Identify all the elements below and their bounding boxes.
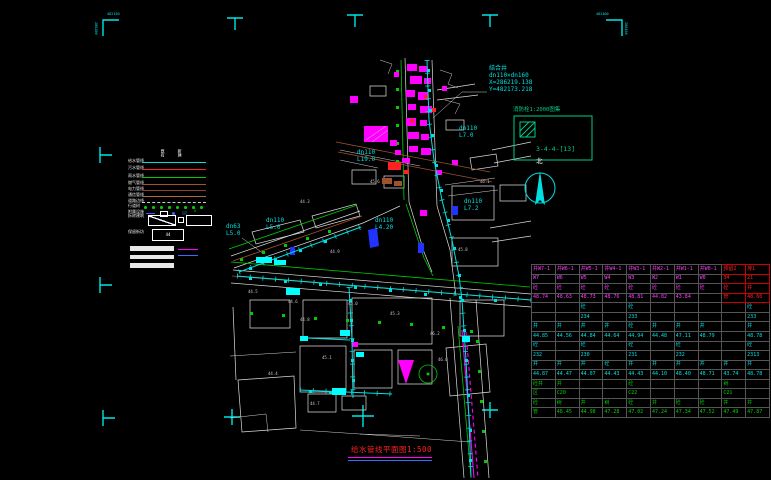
table-cell: 砼 (627, 341, 651, 351)
spot-elevation: 46.2 (430, 332, 440, 337)
table-row: 234233233 (532, 312, 770, 322)
table-cell: 砼 (627, 284, 651, 294)
table-row: 管48.4544.9847.2847.0247.2447.3447.5247.4… (532, 408, 770, 418)
table-cell: 47.87 (746, 408, 770, 418)
table-cell: 砼 (627, 398, 651, 408)
table-cell: 48.73 (579, 293, 603, 303)
table-cell: 树 (603, 398, 627, 408)
table-cell (603, 341, 627, 351)
map-label: dn110 L7.2 (464, 199, 482, 213)
table-cell: 232 (532, 351, 556, 361)
table-cell (722, 341, 746, 351)
table-cell: W1 (674, 274, 698, 284)
table-cell: 井 (555, 322, 579, 332)
table-cell: 井 (722, 360, 746, 370)
table-cell: 砼 (532, 341, 556, 351)
table-cell: 树 (722, 379, 746, 389)
hatch-blobs (256, 257, 470, 395)
table-row: 2322302312322313 (532, 351, 770, 361)
corner-coord-tr-v: 286450 (624, 22, 628, 35)
table-cell: 井 (579, 360, 603, 370)
table-row: 井W7-1井W6-1井W5-1井W4-1井W3-1井W2-1井W1-1井W0-1… (532, 265, 770, 275)
table-cell: 井 (555, 360, 579, 370)
table-cell: 230 (579, 351, 603, 361)
table-cell: 井 (650, 398, 674, 408)
table-cell: 44.87 (532, 370, 556, 380)
table-cell: W5 (579, 274, 603, 284)
table-cell: 井 (650, 360, 674, 370)
legend-shape: 44 (152, 229, 184, 241)
table-cell: 48.79 (698, 331, 722, 341)
table-cell: 48.40 (674, 370, 698, 380)
table-cell: 44.10 (650, 370, 674, 380)
legend-shape (178, 217, 184, 223)
legend-col-header: 既有 (160, 149, 165, 157)
table-cell: 砼 (698, 284, 722, 294)
table-cell: 48.63 (555, 293, 579, 303)
table-cell: 井W5-1 (579, 265, 603, 275)
table-cell: 48.78 (746, 370, 770, 380)
table-cell: 47.24 (650, 408, 674, 418)
table-cell: C22 (627, 389, 651, 399)
legend-col-header: 新建 (177, 149, 182, 157)
table-cell: C21 (722, 389, 746, 399)
spot-elevation: 44.3 (300, 200, 310, 205)
table-cell: 砼 (627, 303, 651, 313)
table-cell: 47.02 (627, 408, 651, 418)
table-cell: 井 (746, 284, 770, 294)
legend-label: 行道树 (128, 204, 140, 209)
legend-shape (142, 169, 206, 170)
table-cell (698, 341, 722, 351)
table-cell: 48.81 (627, 293, 651, 303)
table-cell (555, 341, 579, 351)
legend-shape (168, 206, 171, 209)
table-cell: 砼 (746, 341, 770, 351)
legend-shape (142, 196, 206, 197)
table-cell: 34 (722, 274, 746, 284)
green-utility-lines (229, 60, 530, 478)
spot-elevation: 44.9 (330, 250, 340, 255)
table-cell: 44.47 (555, 370, 579, 380)
map-label: dn63 L5.0 (226, 224, 240, 238)
legend-shape (176, 206, 179, 209)
table-cell: 预留2 (722, 265, 746, 275)
table-cell: 砼 (603, 360, 627, 370)
table-cell: 井 (579, 398, 603, 408)
table-cell: 砼 (532, 284, 556, 294)
table-cell: 48.60 (746, 293, 770, 303)
table-cell (650, 312, 674, 322)
table-cell: 砼 (674, 284, 698, 294)
table-cell (650, 351, 674, 361)
table-cell (746, 389, 770, 399)
table-cell (650, 379, 674, 389)
table-cell (722, 303, 746, 313)
table-cell: 井W3-1 (627, 265, 651, 275)
table-cell (722, 331, 746, 341)
table-cell: 井W2-1 (650, 265, 674, 275)
spot-elevation: 45.1 (322, 356, 332, 361)
map-label: dn110 L7.0 (459, 126, 477, 140)
map-label: dn110 L19.0 (357, 150, 375, 164)
table-cell (698, 389, 722, 399)
table-row: 44.8544.5644.8444.6444.9444.4847.1148.79… (532, 331, 770, 341)
corner-coord-tl-h: 482150 (107, 12, 120, 16)
table-cell: 井W0-1 (698, 265, 722, 275)
table-cell: 砼 (698, 398, 722, 408)
table-row: 井井井井砼井井井井 (532, 322, 770, 332)
table-cell: 48.45 (555, 408, 579, 418)
table-cell: 233 (746, 312, 770, 322)
table-row: 区C20C22C21 (532, 389, 770, 399)
table-cell: 井 (746, 360, 770, 370)
table-cell: 48.71 (698, 370, 722, 380)
table-cell: 井 (698, 322, 722, 332)
table-cell: 井 (746, 398, 770, 408)
table-cell: 井 (674, 322, 698, 332)
legend-shape (148, 215, 176, 226)
table-row: 砼砼砼 (532, 303, 770, 313)
table-cell: 48.78 (746, 331, 770, 341)
legend-shape (184, 206, 187, 209)
table-cell: 47.34 (674, 408, 698, 418)
table-cell: 砼 (674, 398, 698, 408)
table-cell (674, 379, 698, 389)
table-cell: 砼 (627, 322, 651, 332)
table-cell (555, 351, 579, 361)
map-label: dn110 L4.20 (375, 218, 393, 232)
table-cell: 井W1-1 (674, 265, 698, 275)
table-cell: 44.84 (579, 331, 603, 341)
water-mains (237, 60, 531, 477)
table-cell: 井 (698, 360, 722, 370)
table-cell: 44.56 (555, 331, 579, 341)
table-cell: W7 (532, 274, 556, 284)
corner-coord-tl-v: 286200 (94, 22, 98, 35)
spot-elevation: 46.1 (480, 180, 490, 185)
table-cell: 砼 (674, 341, 698, 351)
table-cell: 井 (722, 398, 746, 408)
table-cell (555, 303, 579, 313)
map-label: 结合井 dn110×dn160 X=286219.138 Y=482173.21… (489, 66, 532, 94)
table-cell: 44.43 (627, 370, 651, 380)
table-row: 砼砼砼砼砼砼砼砼砼井 (532, 284, 770, 294)
legend-shape (130, 263, 174, 268)
legend-shape (142, 177, 206, 178)
table-cell (698, 351, 722, 361)
table-cell: 48.74 (532, 293, 556, 303)
table-cell: 井 (674, 360, 698, 370)
spot-elevation: 44.7 (310, 402, 320, 407)
legend-shape (186, 215, 212, 226)
table-cell: 树 (555, 398, 579, 408)
table-cell (698, 312, 722, 322)
table-cell: 管 (532, 408, 556, 418)
table-cell: 砼 (579, 341, 603, 351)
parcel-outlines (231, 58, 531, 478)
table-cell (722, 351, 746, 361)
pipeline-data-table: 井W7-1井W6-1井W5-1井W4-1井W3-1井W2-1井W1-1井W0-1… (531, 264, 770, 418)
north-arrow (525, 171, 555, 205)
table-row: 48.7448.6348.7348.7648.8144.8243.84管48.6… (532, 293, 770, 303)
table-cell: 井 (627, 360, 651, 370)
table-cell: 47.52 (698, 408, 722, 418)
spot-elevation: 44.8 (300, 318, 310, 323)
table-cell (603, 351, 627, 361)
blue-features (290, 206, 458, 255)
table-cell (722, 322, 746, 332)
table-cell (603, 389, 627, 399)
table-cell: 44.64 (603, 331, 627, 341)
table-row: 砼树井树砼井砼砼井井 (532, 398, 770, 408)
table-cell: W6 (555, 274, 579, 284)
legend-shape (144, 206, 147, 209)
table-cell: 44.43 (603, 370, 627, 380)
table-cell: W4 (603, 274, 627, 284)
legend-label: 保留街坊 (128, 230, 144, 235)
legend-label: 拆除建筑 (128, 214, 144, 219)
legend-shape (178, 255, 198, 256)
spot-elevation: 44.4 (268, 372, 278, 377)
table-cell: 区 (532, 389, 556, 399)
title-underline-blue (348, 460, 432, 461)
legend-shape (130, 246, 174, 251)
table-cell: 井 (579, 322, 603, 332)
table-cell: 井 (650, 322, 674, 332)
table-cell: W2 (650, 274, 674, 284)
table-cell: 砼 (627, 379, 651, 389)
table-cell (532, 312, 556, 322)
legend-shape (160, 206, 163, 209)
table-cell: 44.48 (650, 331, 674, 341)
table-cell: 砼 (579, 303, 603, 313)
table-cell: 43.74 (722, 370, 746, 380)
table-row: 砼井井砼树 (532, 379, 770, 389)
table-cell: 44.94 (627, 331, 651, 341)
table-cell (603, 379, 627, 389)
table-cell: 砼 (555, 284, 579, 294)
spot-elevation: 45.6 (370, 180, 380, 185)
table-cell: 48.76 (603, 293, 627, 303)
table-cell (650, 389, 674, 399)
table-row: 砼砼砼砼砼 (532, 341, 770, 351)
spot-elevation: 44.6 (288, 300, 298, 305)
table-cell: 砼 (722, 284, 746, 294)
spot-elevation: 45.8 (458, 248, 468, 253)
table-cell (603, 303, 627, 313)
legend-shape (142, 202, 206, 203)
table-cell: 井W6-1 (555, 265, 579, 275)
table-cell: 井 (746, 322, 770, 332)
spot-elevation: 45.3 (390, 312, 400, 317)
corner-coord-tr-h: 482400 (596, 12, 609, 16)
title-underline-magenta (348, 457, 432, 458)
table-cell: 砼 (532, 398, 556, 408)
table-cell: 232 (674, 351, 698, 361)
table-row: 井井井砼井井井井井井 (532, 360, 770, 370)
table-cell (579, 379, 603, 389)
table-cell: W3 (627, 274, 651, 284)
table-cell (698, 303, 722, 313)
table-cell: 44.07 (579, 370, 603, 380)
table-cell: 47.49 (722, 408, 746, 418)
table-cell: 砼 (650, 284, 674, 294)
table-cell: 砼 (603, 284, 627, 294)
table-cell: 井 (532, 322, 556, 332)
table-cell (698, 293, 722, 303)
table-cell: 44.82 (650, 293, 674, 303)
table-cell: 砼 (746, 303, 770, 313)
spot-elevation: 44.5 (248, 290, 258, 295)
detail-box-title: 消防栓1:2000图集 (513, 107, 560, 113)
table-cell: 井W7-1 (532, 265, 556, 275)
table-cell: 47.11 (674, 331, 698, 341)
map-label: dn110 L5.0 (266, 218, 284, 232)
table-cell: 233 (627, 312, 651, 322)
table-cell (650, 303, 674, 313)
table-row: 44.8744.4744.0744.4344.4344.1048.4048.71… (532, 370, 770, 380)
tree-markers (240, 70, 487, 463)
table-cell (698, 379, 722, 389)
table-cell: 井 (532, 360, 556, 370)
table-cell (555, 312, 579, 322)
table-cell (674, 389, 698, 399)
table-cell: 44.85 (532, 331, 556, 341)
table-cell: 234 (579, 312, 603, 322)
table-cell: 2313 (746, 351, 770, 361)
legend-shape (142, 162, 206, 163)
table-cell: 47.28 (603, 408, 627, 418)
table-cell: 231 (627, 351, 651, 361)
legend-shape (152, 206, 155, 209)
table-cell: 21 (746, 274, 770, 284)
table-cell: W0 (698, 274, 722, 284)
pipeline-table: 井W7-1井W6-1井W5-1井W4-1井W3-1井W2-1井W1-1井W0-1… (531, 264, 770, 418)
legend-shape (146, 213, 155, 214)
table-cell: 砼 (579, 284, 603, 294)
table-cell: C20 (555, 389, 579, 399)
legend-shape (178, 249, 198, 250)
cad-canvas: 结合井 dn110×dn160 X=286219.138 Y=482173.21… (0, 0, 771, 480)
table-cell: 砼井 (532, 379, 556, 389)
table-cell (674, 303, 698, 313)
table-cell: 井W4-1 (603, 265, 627, 275)
table-cell (650, 341, 674, 351)
drawing-title: 给水管线平面图1:500 (351, 446, 432, 455)
legend-symbol: £ (194, 209, 196, 214)
table-cell: 排1 (746, 265, 770, 275)
legend-shape (142, 190, 206, 191)
table-cell (603, 312, 627, 322)
legend-shape (130, 255, 174, 260)
legend-shape (142, 184, 206, 185)
table-cell: 44.98 (579, 408, 603, 418)
table-cell: 井 (603, 322, 627, 332)
table-row: W7W6W5W4W3W2W1W03421 (532, 274, 770, 284)
table-cell: 管 (722, 293, 746, 303)
table-cell (722, 312, 746, 322)
table-cell (579, 389, 603, 399)
table-cell (746, 379, 770, 389)
spot-elevation: 45.0 (348, 302, 358, 307)
north-label: 北 (536, 158, 543, 165)
detail-box-ref: 3-4-4-[13] (536, 146, 575, 153)
table-cell: 井 (555, 379, 579, 389)
table-cell (532, 303, 556, 313)
table-cell: 43.84 (674, 293, 698, 303)
table-cell (674, 312, 698, 322)
legend-shape (200, 206, 203, 209)
spot-elevation: 46.0 (438, 358, 448, 363)
